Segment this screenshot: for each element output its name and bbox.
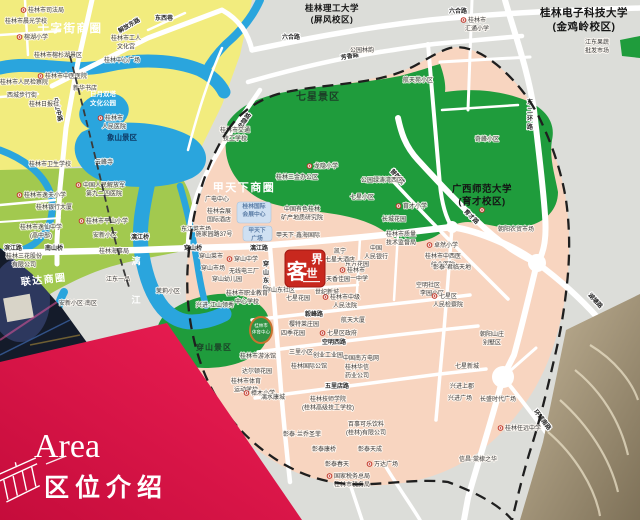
map-label: 航天大厦 xyxy=(341,316,365,324)
map-label: 创业工业园 xyxy=(313,351,343,359)
map-label: 长城花园 xyxy=(382,215,406,223)
map-label: 穿山景区 xyxy=(196,342,232,352)
poi-marker-dot xyxy=(100,117,102,119)
map-label: 桂林理工大学(屏风校区) xyxy=(304,3,359,24)
logo-char-shi: 世 xyxy=(307,266,318,280)
poi-marker-dot xyxy=(325,296,327,298)
map-label: 桂林三金办公区 xyxy=(276,173,318,181)
map-label: 西城步行街 xyxy=(7,91,37,99)
poi-marker-dot xyxy=(369,463,371,465)
map-label: 毅峰路 xyxy=(304,310,324,318)
map-label: 七星新城 xyxy=(455,362,479,370)
map-label: 彰泰春天 xyxy=(325,460,349,468)
logo-char-jie: 界 xyxy=(311,253,323,266)
map-label: 穿山桥 xyxy=(184,244,203,252)
map-label: 象山景区 xyxy=(107,132,137,142)
map-label: 彰泰·兰乔圣菲 xyxy=(283,430,321,438)
map-label: 漓 xyxy=(131,255,140,266)
map-label: 桂林市人民检察院 xyxy=(0,78,48,86)
map-label: 桂林市卫生学校 xyxy=(29,160,71,168)
map-label: 桂林市榕杉湖景区 xyxy=(34,51,82,59)
map-label: 万达广场 xyxy=(374,460,398,468)
map-label: 桂林任远中学 xyxy=(505,424,541,432)
map-label: 十字街商圈 xyxy=(38,21,103,35)
map-label: 滨江路 xyxy=(4,244,23,252)
map-label: 奇峰小区 xyxy=(475,135,499,143)
map-screenshot: 十字街商圈甲天下商圈联达商圈七星景区穿山景区桂林理工大学(屏风校区)桂林电子科技… xyxy=(0,0,640,520)
project-logo: 客 世 界 xyxy=(285,250,325,287)
poi-marker-dot xyxy=(19,36,21,38)
map-label: 安新小区·南区 xyxy=(59,299,97,307)
map-label: 广电中心 xyxy=(205,195,229,203)
poi-marker-dot xyxy=(481,209,483,211)
map-label: 桂林市平山小学 xyxy=(86,217,128,225)
map-label: 无线电三厂 xyxy=(229,267,259,275)
map-label: 桂林银行大厦 xyxy=(36,203,72,211)
map-label: 彰泰康桥 xyxy=(312,445,336,453)
map-label: 卓然小学 xyxy=(434,241,458,249)
poi-marker-dot xyxy=(429,244,431,246)
road-junction xyxy=(492,366,514,388)
map-label: 彰泰天成 xyxy=(358,445,382,453)
map-label: 桂林海事局 xyxy=(99,247,129,255)
map-label: 桂林中心广场 xyxy=(104,56,140,64)
map-label: 桂林市晨光学校 xyxy=(5,17,47,25)
map-label: 漓水康城 xyxy=(261,393,285,401)
poi-marker-dot xyxy=(398,205,400,207)
map-label: 七星小区 xyxy=(350,193,374,201)
map-label: 三里小区 xyxy=(289,348,313,356)
map-label: 朝阳农贸市场 xyxy=(498,225,534,233)
map-label: 穿山市场 xyxy=(201,264,225,272)
map-label: 穿山菜市 xyxy=(199,252,223,260)
map-label: 东西巷 xyxy=(155,14,173,22)
road-junction-small xyxy=(446,221,458,233)
map-label: 六合路 xyxy=(282,33,301,41)
map-label: 五里店路 xyxy=(325,382,350,390)
map-label: 桂林国际公馆 xyxy=(291,362,327,370)
map-label: 江 xyxy=(131,294,140,305)
poi-marker-dot xyxy=(246,392,248,394)
map-label: 穿山幼儿园 xyxy=(212,275,242,283)
map-label: 榕湖小学 xyxy=(24,33,48,41)
poi-marker-dot xyxy=(229,258,231,260)
banner-title-zh: 区位介绍 xyxy=(44,473,168,502)
map-label: 樱特莱庄园 xyxy=(289,320,319,328)
map-label: 空明社区 xyxy=(416,281,440,289)
poi-marker-dot xyxy=(434,295,436,297)
map-label: 桂林市逸夫小学 xyxy=(24,191,66,199)
map-label: 空明西路 xyxy=(322,338,347,346)
map-label: 公园林韵 xyxy=(350,46,374,54)
poi-marker-dot xyxy=(329,475,331,477)
poi-marker-dot xyxy=(500,427,502,429)
map-label: 兴进广场 xyxy=(448,394,472,402)
map-label: 穿山中学 xyxy=(234,255,258,263)
logo-char-main: 客 xyxy=(287,260,309,284)
poi-marker-dot xyxy=(40,75,42,77)
map-label: 新华书店 xyxy=(73,84,97,92)
map-label: 漓江路 xyxy=(250,244,269,252)
poi-marker-dot xyxy=(23,9,25,11)
map-label: 航天苑小区 xyxy=(403,76,433,84)
map-label: 中国南方电网 xyxy=(343,354,379,362)
map-label: 漓江桥 xyxy=(131,233,150,241)
map-label: 兴进·江山领秀 xyxy=(196,301,234,309)
map-label: 信昌·棠棣之华 xyxy=(459,455,497,463)
poi-marker-dot xyxy=(322,332,324,334)
map-label: 七星景区 xyxy=(296,90,340,103)
banner-title-en: Area xyxy=(34,428,100,465)
poi-marker-dot xyxy=(463,19,465,21)
poi-marker-dot xyxy=(309,165,311,167)
poi-marker-dot xyxy=(81,220,83,222)
map-label: 育才小学 xyxy=(403,202,427,210)
logo-underline xyxy=(303,281,320,282)
poi-marker-dot xyxy=(19,194,21,196)
poi-marker-dot xyxy=(342,269,344,271)
map-label: 四季花园 xyxy=(281,329,305,337)
map-label: 七星花园 xyxy=(286,294,310,302)
map-label: 桂林日报社 xyxy=(29,100,59,108)
map-label: 桂林市中医医院 xyxy=(45,72,87,80)
map-label: 桂林市游泳馆 xyxy=(240,352,276,360)
poi-marker-dot xyxy=(78,184,80,186)
map-label: 桂林市司法局 xyxy=(28,6,64,14)
map-label: 南山桥 xyxy=(45,244,64,252)
map-label: 兴进上郡 xyxy=(450,382,474,390)
map-label: 甲天下·鑫海国际 xyxy=(276,231,320,239)
map-label: 桂林市体育中心 xyxy=(252,322,270,335)
map-label: 达尔顿花园 xyxy=(242,367,272,375)
map-label: 公园绿涛湾西区 xyxy=(361,176,403,184)
map-label: 龙隐小学 xyxy=(314,162,338,170)
map-label: 彰泰·君临天地 xyxy=(433,263,471,271)
map-label: 茉莉小区 xyxy=(156,287,180,295)
roundabout xyxy=(528,254,546,272)
map-label: 施家园路37号 xyxy=(196,230,233,238)
map-label: 天香佳园 xyxy=(326,275,350,283)
map-label: 六合路 xyxy=(449,7,468,15)
map-label: 七星区政府 xyxy=(327,329,357,337)
map-label: 长盛时代广场 xyxy=(480,395,516,403)
map-label: 甲天下商圈 xyxy=(213,180,276,194)
city-map: 十字街商圈甲天下商圈联达商圈七星景区穿山景区桂林理工大学(屏风校区)桂林电子科技… xyxy=(0,0,640,520)
